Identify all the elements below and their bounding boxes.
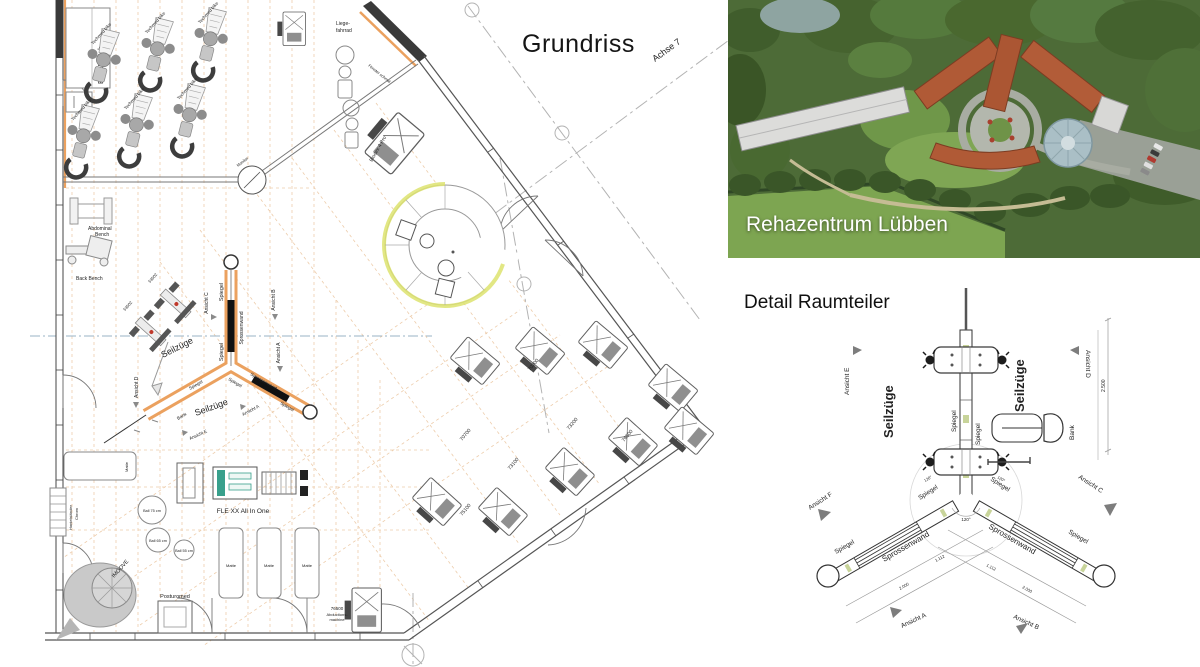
photo-caption: Rehazentrum Lübben: [746, 213, 948, 237]
ansicht-d-label: Ansicht D: [1084, 350, 1091, 378]
liegefahrrad-label: fahrrad: [336, 28, 352, 34]
ball-65-label: Ball 65 cm: [149, 539, 167, 543]
recumbent-bike: [336, 46, 359, 148]
ball-75-label: Ball 75 cm: [143, 509, 161, 513]
detail-title: Detail Raumteiler: [744, 292, 890, 314]
ansicht-c-marker: [211, 314, 217, 320]
drawing-canvas: Achse 7: [0, 0, 1200, 667]
dumbbell-rack: [50, 488, 66, 536]
angle-label: 120°: [923, 474, 933, 483]
spiegel-label: Spiegel: [219, 283, 225, 301]
window-label: Fenster schmal: [367, 63, 391, 84]
matte-label: Matte: [264, 563, 275, 568]
machine-number: 70700: [459, 428, 473, 443]
bank-label: Bank: [176, 411, 188, 421]
machine-cluster: [407, 321, 714, 542]
ansicht-b-marker: [1016, 623, 1028, 634]
rack-label: Hantelständer: [68, 504, 73, 530]
abduction-label: machine: [329, 617, 345, 622]
abduction-label: 76500: [331, 606, 344, 611]
axis-label: Achse 7: [650, 36, 682, 63]
detail-diagram: 2.500 1.112 2.000 1.112 2.000 120° 120° …: [807, 288, 1117, 634]
spiegel-label: Spiegel: [1067, 529, 1090, 546]
angle-label: 120°: [961, 517, 971, 522]
machine-number: 73200: [566, 417, 580, 432]
seilzuege-label: Seilzüge: [193, 397, 229, 418]
ansicht-c-label: Ansicht C: [1077, 474, 1104, 495]
ansicht-c-marker: [1104, 503, 1117, 516]
ansicht-e-label: Ansicht E: [844, 367, 851, 395]
posturomed-label: Posturomed: [160, 594, 190, 600]
dimension-label: 1.112: [934, 553, 946, 563]
imoove-device: [56, 563, 136, 640]
dimension-label: 2.000: [898, 581, 910, 591]
ansicht-d-marker: [1070, 346, 1079, 355]
dimension-label: 1.112: [986, 563, 998, 573]
ansicht-a-marker: [277, 366, 283, 372]
monitor-label: Monitor: [236, 155, 250, 168]
floorplan-title: Grundriss: [522, 30, 635, 59]
posturomed-device: [158, 601, 192, 633]
machine-53502-label: 53502: [147, 271, 159, 283]
exercise-bike: [110, 92, 161, 171]
ansicht-e-marker: [182, 430, 188, 436]
dimension-label: 2.500: [1101, 379, 1107, 392]
seilzuege-label: Seilzüge: [881, 385, 896, 438]
pulley-tower: [923, 347, 1009, 373]
back-bench: [66, 236, 112, 266]
ball-55-label: Ball 55 cm: [175, 549, 193, 553]
ansicht-e-label: Ansicht E: [188, 429, 207, 441]
ansicht-b-label: Ansicht B: [271, 289, 277, 311]
doors: [63, 80, 586, 633]
exercise-bike: [163, 82, 214, 161]
ansicht-a-label: Ansicht A: [276, 342, 282, 364]
matte-label: Matte: [302, 563, 313, 568]
floorplan: Achse 7: [30, 0, 748, 666]
spiegel-label: Spiegel: [975, 423, 982, 445]
seilzuege-label: Seilzüge: [1012, 359, 1027, 412]
axis-lines: [402, 3, 748, 666]
flexx-label: FLE XX All In One: [217, 508, 270, 515]
ansicht-f-label: Ansicht F: [807, 491, 834, 512]
ansicht-a-marker: [890, 607, 902, 618]
rack-label: Chrom: [74, 507, 79, 520]
ansicht-b-marker: [272, 314, 278, 320]
ansicht-a-label: Ansicht A: [900, 612, 928, 630]
machine-53502-label: 53502: [122, 299, 134, 311]
matte-label: Matte: [226, 563, 237, 568]
dimension-label: 2.000: [1022, 585, 1034, 595]
spiegel-label: Spiegel: [834, 539, 857, 556]
ansicht-d-label: Ansicht D: [134, 376, 140, 398]
ansicht-b-label: Ansicht B: [1012, 613, 1040, 631]
room-divider-plan: [104, 255, 317, 443]
ansicht-c-label: Ansicht C: [204, 292, 210, 314]
gym-machine: [277, 12, 305, 46]
spiegel-label: Spiegel: [951, 410, 958, 432]
matte-label: Matte: [124, 461, 129, 472]
divider-arm-right: [973, 501, 1107, 585]
spiegel-label: Spiegel: [917, 484, 939, 502]
arm-end-circle: [1093, 565, 1115, 587]
spiegel-label: Spiegel: [219, 343, 225, 361]
machine-53502: [152, 280, 199, 327]
ansicht-a-marker: [240, 404, 246, 410]
back-bench-label: Back Bench: [76, 276, 103, 282]
abdominal-bench: [70, 198, 112, 224]
flexx-machine: [177, 463, 308, 503]
exercise-bike: [184, 6, 235, 85]
bank-label: Bank: [1069, 424, 1076, 440]
biodex-machine: [358, 106, 425, 174]
ansicht-f-marker: [818, 509, 831, 521]
reception-counter: [384, 184, 519, 306]
ansicht-e-marker: [853, 346, 862, 355]
machine-number: 73100: [507, 457, 521, 472]
abduction-machine: [345, 588, 382, 632]
page: Achse 7: [0, 0, 1200, 667]
bench: [988, 414, 1063, 465]
arm-end-circle: [817, 565, 839, 587]
sprossenwand-label: Sprossenwand: [239, 311, 245, 344]
liegefahrrad-label: Liege-: [336, 21, 350, 27]
